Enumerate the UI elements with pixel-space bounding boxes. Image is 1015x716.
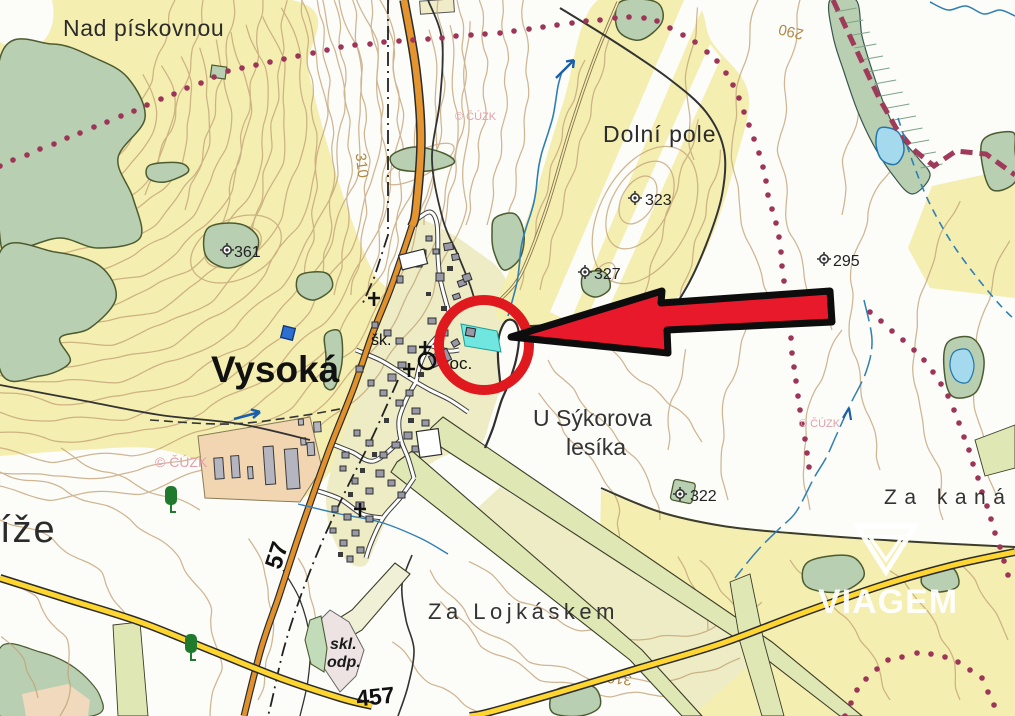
svg-text:322: 322 [690, 488, 717, 505]
svg-text:Za kaná: Za kaná [884, 486, 1012, 509]
svg-text:Nad pískovnou: Nad pískovnou [63, 15, 224, 41]
svg-text:VIAGEM: VIAGEM [818, 583, 958, 621]
svg-text:327: 327 [594, 266, 621, 283]
svg-text:šk.: šk. [371, 332, 391, 349]
svg-text:© ČÚZK: © ČÚZK [155, 454, 208, 470]
svg-text:310: 310 [352, 152, 372, 179]
svg-text:Dolní pole: Dolní pole [603, 121, 717, 147]
svg-text:457: 457 [355, 682, 396, 712]
svg-text:lesíka: lesíka [566, 434, 626, 460]
svg-text:skl.: skl. [330, 636, 357, 653]
svg-text:361: 361 [234, 244, 261, 261]
svg-text:Vysoká: Vysoká [211, 349, 340, 390]
svg-text:íže: íže [0, 509, 57, 551]
svg-text:Za Lojkáskem: Za Lojkáskem [428, 599, 619, 624]
svg-text:295: 295 [833, 253, 860, 270]
svg-text:323: 323 [645, 192, 672, 209]
svg-text:odp.: odp. [327, 654, 361, 671]
svg-text:U Sýkorova: U Sýkorova [533, 405, 652, 431]
svg-text:© ČÚZK: © ČÚZK [455, 110, 497, 123]
svg-text:© ČÚZK: © ČÚZK [799, 417, 841, 430]
